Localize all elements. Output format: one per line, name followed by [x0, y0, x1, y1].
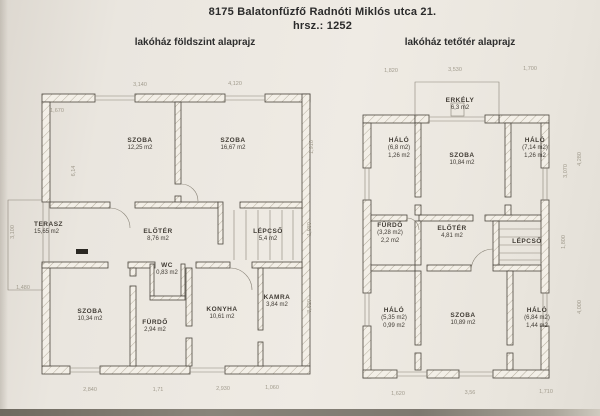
room-area: 2,94 m2 [120, 327, 190, 335]
room-terasz: TERASZ 15,65 m2 [34, 221, 94, 237]
room-lepcso: LÉPCSŐ 5,4 m2 [233, 228, 303, 244]
scanned-floorplan-sheet: 8175 Balatonfűzfő Radnóti Miklós utca 21… [0, 0, 600, 416]
room-name: SZOBA [198, 137, 268, 145]
dim-label: 1,820 [361, 68, 421, 74]
dim-label: 1,710 [516, 389, 576, 395]
room-name: LÉPCSŐ [233, 228, 303, 236]
room-szoba-1: SZOBA 12,25 m2 [105, 137, 175, 153]
room-name: SZOBA [428, 312, 498, 320]
room-furdo: FÜRDŐ 2,94 m2 [120, 319, 190, 335]
address-line: 8175 Balatonfűzfő Radnóti Miklós utca 21… [45, 6, 600, 18]
dim-label: 4,000 [577, 289, 583, 325]
room-halo-bottom-right: HÁLÓ (6,84 m2) 1,44 m2 [502, 307, 572, 331]
dim-label: 3,140 [110, 82, 170, 88]
dim-label: 1,620 [368, 391, 428, 397]
dim-label: 4,280 [577, 141, 583, 177]
dim-label: 1,910 [309, 129, 315, 165]
dim-label: 3,070 [563, 153, 569, 189]
room-name: SZOBA [105, 137, 175, 145]
room-area: 1,26 m2 [500, 153, 570, 161]
room-area: 10,84 m2 [427, 160, 497, 168]
dim-label: 1,930 [307, 211, 313, 247]
room-area: (3,28 m2) [355, 230, 425, 238]
room-area: 0,99 m2 [359, 323, 429, 331]
room-area: 16,67 m2 [198, 145, 268, 153]
room-area: 12,25 m2 [105, 145, 175, 153]
dim-label: 1,670 [32, 108, 82, 114]
dim-label: 6,14 [71, 153, 77, 189]
dim-label: 3,100 [10, 214, 16, 250]
room-area: 3,84 m2 [247, 302, 307, 310]
room-lepcso-attic: LÉPCSŐ [492, 238, 562, 246]
room-area: 1,44 m2 [502, 323, 572, 331]
room-area: 10,61 m2 [187, 314, 257, 322]
photo-bottom-shadow [0, 409, 600, 416]
room-name: HÁLÓ [359, 307, 429, 315]
room-szoba-top: SZOBA 10,84 m2 [427, 152, 497, 168]
room-szoba-2: SZOBA 16,67 m2 [198, 137, 268, 153]
room-name: SZOBA [55, 308, 125, 316]
room-eloter-attic: ELŐTÉR 4,81 m2 [417, 225, 487, 241]
room-name: HÁLÓ [500, 137, 570, 145]
room-area: 10,34 m2 [55, 316, 125, 324]
room-wc: WC 0,83 m2 [145, 262, 189, 278]
room-area: (7,14 m2) [500, 145, 570, 153]
room-halo-top-left: HÁLÓ (6,8 m2) 1,26 m2 [364, 137, 434, 161]
room-name: FÜRDŐ [120, 319, 190, 327]
attic-plan-title: lakóház tetőtér alaprajz [360, 37, 560, 48]
room-name: ERKÉLY [425, 97, 495, 105]
room-area: 10,89 m2 [428, 320, 498, 328]
room-name: HÁLÓ [364, 137, 434, 145]
room-name: SZOBA [427, 152, 497, 160]
dim-label: 3,56 [440, 390, 500, 396]
room-name: KAMRA [247, 294, 307, 302]
room-name: TERASZ [34, 221, 94, 229]
dim-label: 4,120 [205, 81, 265, 87]
dim-label: 1,060 [242, 385, 302, 391]
room-area: (6,84 m2) [502, 315, 572, 323]
room-szoba-3: SZOBA 10,34 m2 [55, 308, 125, 324]
room-area: 1,26 m2 [364, 153, 434, 161]
room-furdo-attic: FÜRDŐ (3,28 m2) 2,2 m2 [355, 222, 425, 246]
room-name: HÁLÓ [502, 307, 572, 315]
dim-label: 3,530 [425, 67, 485, 73]
room-area: 6,3 m2 [425, 105, 495, 113]
dim-label: 2,840 [60, 387, 120, 393]
room-area: 15,65 m2 [34, 229, 94, 237]
room-halo-top-right: HÁLÓ (7,14 m2) 1,26 m2 [500, 137, 570, 161]
dim-label: 1,800 [561, 224, 567, 260]
room-area: 8,76 m2 [123, 236, 193, 244]
room-area: (6,8 m2) [364, 145, 434, 153]
room-kamra: KAMRA 3,84 m2 [247, 294, 307, 310]
dim-label: 1,700 [500, 66, 560, 72]
room-name: ELŐTÉR [417, 225, 487, 233]
room-name: ELŐTÉR [123, 228, 193, 236]
dim-label: 1,71 [128, 387, 188, 393]
ground-floor-plan-title: lakóház földszint alaprajz [95, 37, 295, 48]
room-halo-bottom-left: HÁLÓ (5,35 m2) 0,99 m2 [359, 307, 429, 331]
dim-label: 3,620 [307, 288, 313, 324]
parcel-number-line: hrsz.: 1252 [45, 20, 600, 32]
room-name: FÜRDŐ [355, 222, 425, 230]
room-erkely: ERKÉLY 6,3 m2 [425, 97, 495, 113]
room-name: LÉPCSŐ [492, 238, 562, 246]
room-area: 5,4 m2 [233, 236, 303, 244]
room-area: 4,81 m2 [417, 233, 487, 241]
dim-label: 1,480 [0, 285, 46, 291]
room-eloter: ELŐTÉR 8,76 m2 [123, 228, 193, 244]
room-area: 0,83 m2 [145, 270, 189, 278]
room-area: 2,2 m2 [355, 238, 425, 246]
room-name: WC [145, 262, 189, 270]
room-area: (5,35 m2) [359, 315, 429, 323]
room-szoba-bottom: SZOBA 10,89 m2 [428, 312, 498, 328]
